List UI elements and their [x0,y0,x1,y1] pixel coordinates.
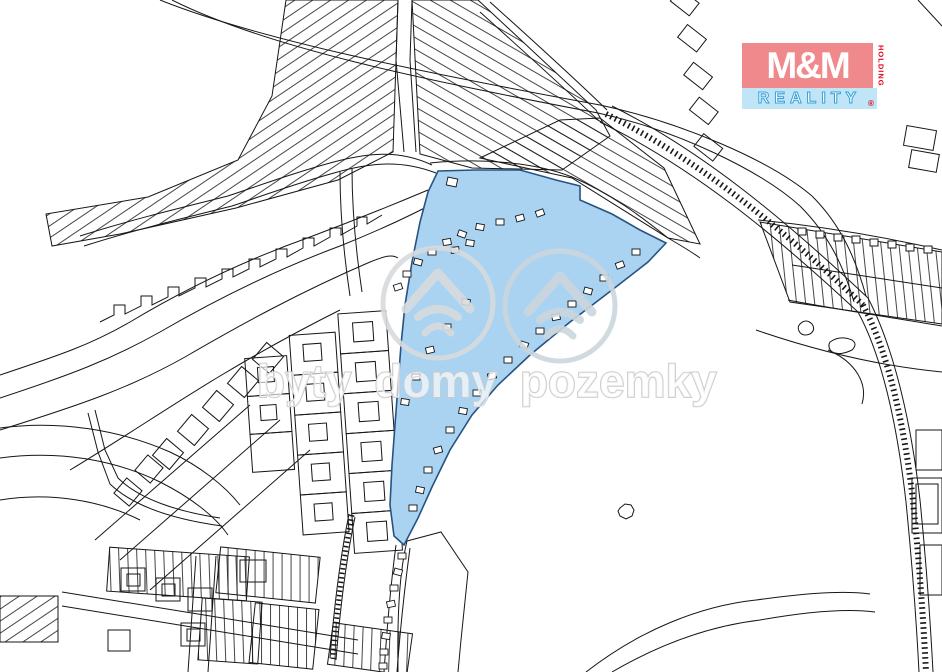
logo-reality-text: REALITY [742,88,877,109]
logo-registered-mark: ® [868,99,874,108]
watermark-text: byty domy pozemky [257,355,717,407]
logo-mm-text: M&M [742,43,873,88]
cadastral-map-screenshot: byty domy pozemky M&M HOLDING REALITY ® [0,0,942,672]
logo-holding-text: HOLDING [873,43,889,88]
mm-reality-logo: M&M HOLDING REALITY ® [742,43,890,109]
